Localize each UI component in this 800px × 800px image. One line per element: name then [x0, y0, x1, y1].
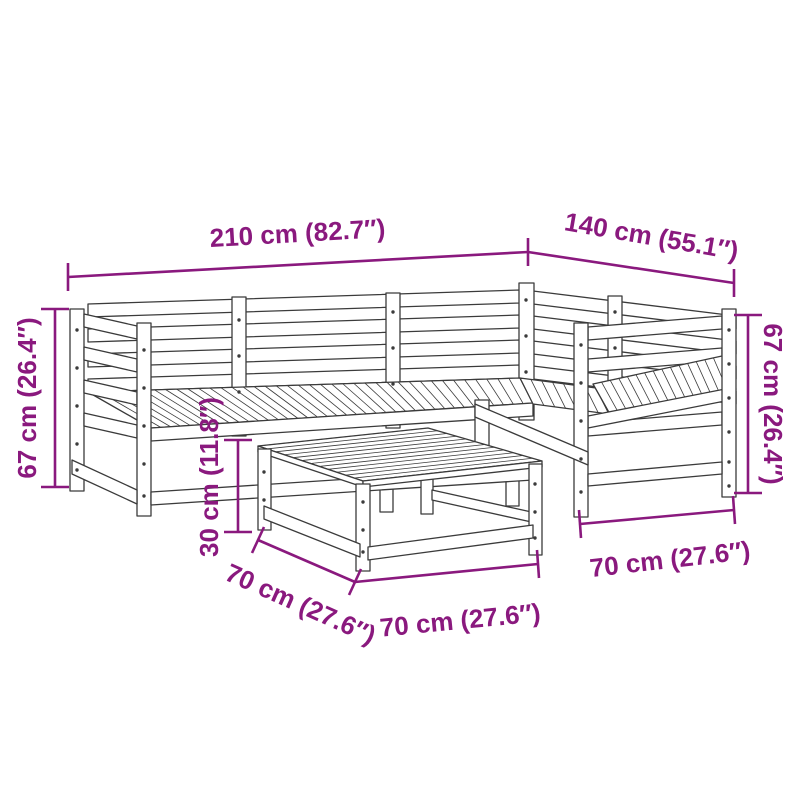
dim-overall-depth-label: 140 cm (55.1″)	[562, 206, 740, 265]
diagram-canvas: 210 cm (82.7″) 140 cm (55.1″) 67 cm (26.…	[0, 0, 800, 800]
front-left-post	[137, 323, 151, 516]
dim-footprint-front-label: 70 cm (27.6″)	[378, 597, 541, 642]
product-dimension-diagram: 210 cm (82.7″) 140 cm (55.1″) 67 cm (26.…	[0, 0, 800, 800]
dim-overall-depth: 140 cm (55.1″)	[528, 206, 741, 297]
table-right-leg	[529, 464, 542, 555]
right-end-post	[722, 309, 736, 497]
dim-height-right-label: 67 cm (26.4″)	[758, 323, 788, 484]
dim-height-right: 67 cm (26.4″)	[734, 315, 788, 493]
dim-height-left: 67 cm (26.4″)	[12, 309, 69, 487]
dim-overall-width: 210 cm (82.7″)	[68, 213, 528, 291]
dim-height-left-label: 67 cm (26.4″)	[12, 317, 42, 478]
dim-overall-width-label: 210 cm (82.7″)	[209, 213, 386, 253]
dim-footprint-right: 70 cm (27.6″)	[579, 496, 752, 583]
dim-footprint-front: 70 cm (27.6″)	[355, 550, 542, 643]
coffee-table	[258, 428, 542, 571]
dim-table-height-label: 30 cm (11.8″)	[194, 397, 224, 557]
dim-footprint-right-label: 70 cm (27.6″)	[588, 535, 752, 583]
furniture-drawing	[70, 283, 736, 571]
